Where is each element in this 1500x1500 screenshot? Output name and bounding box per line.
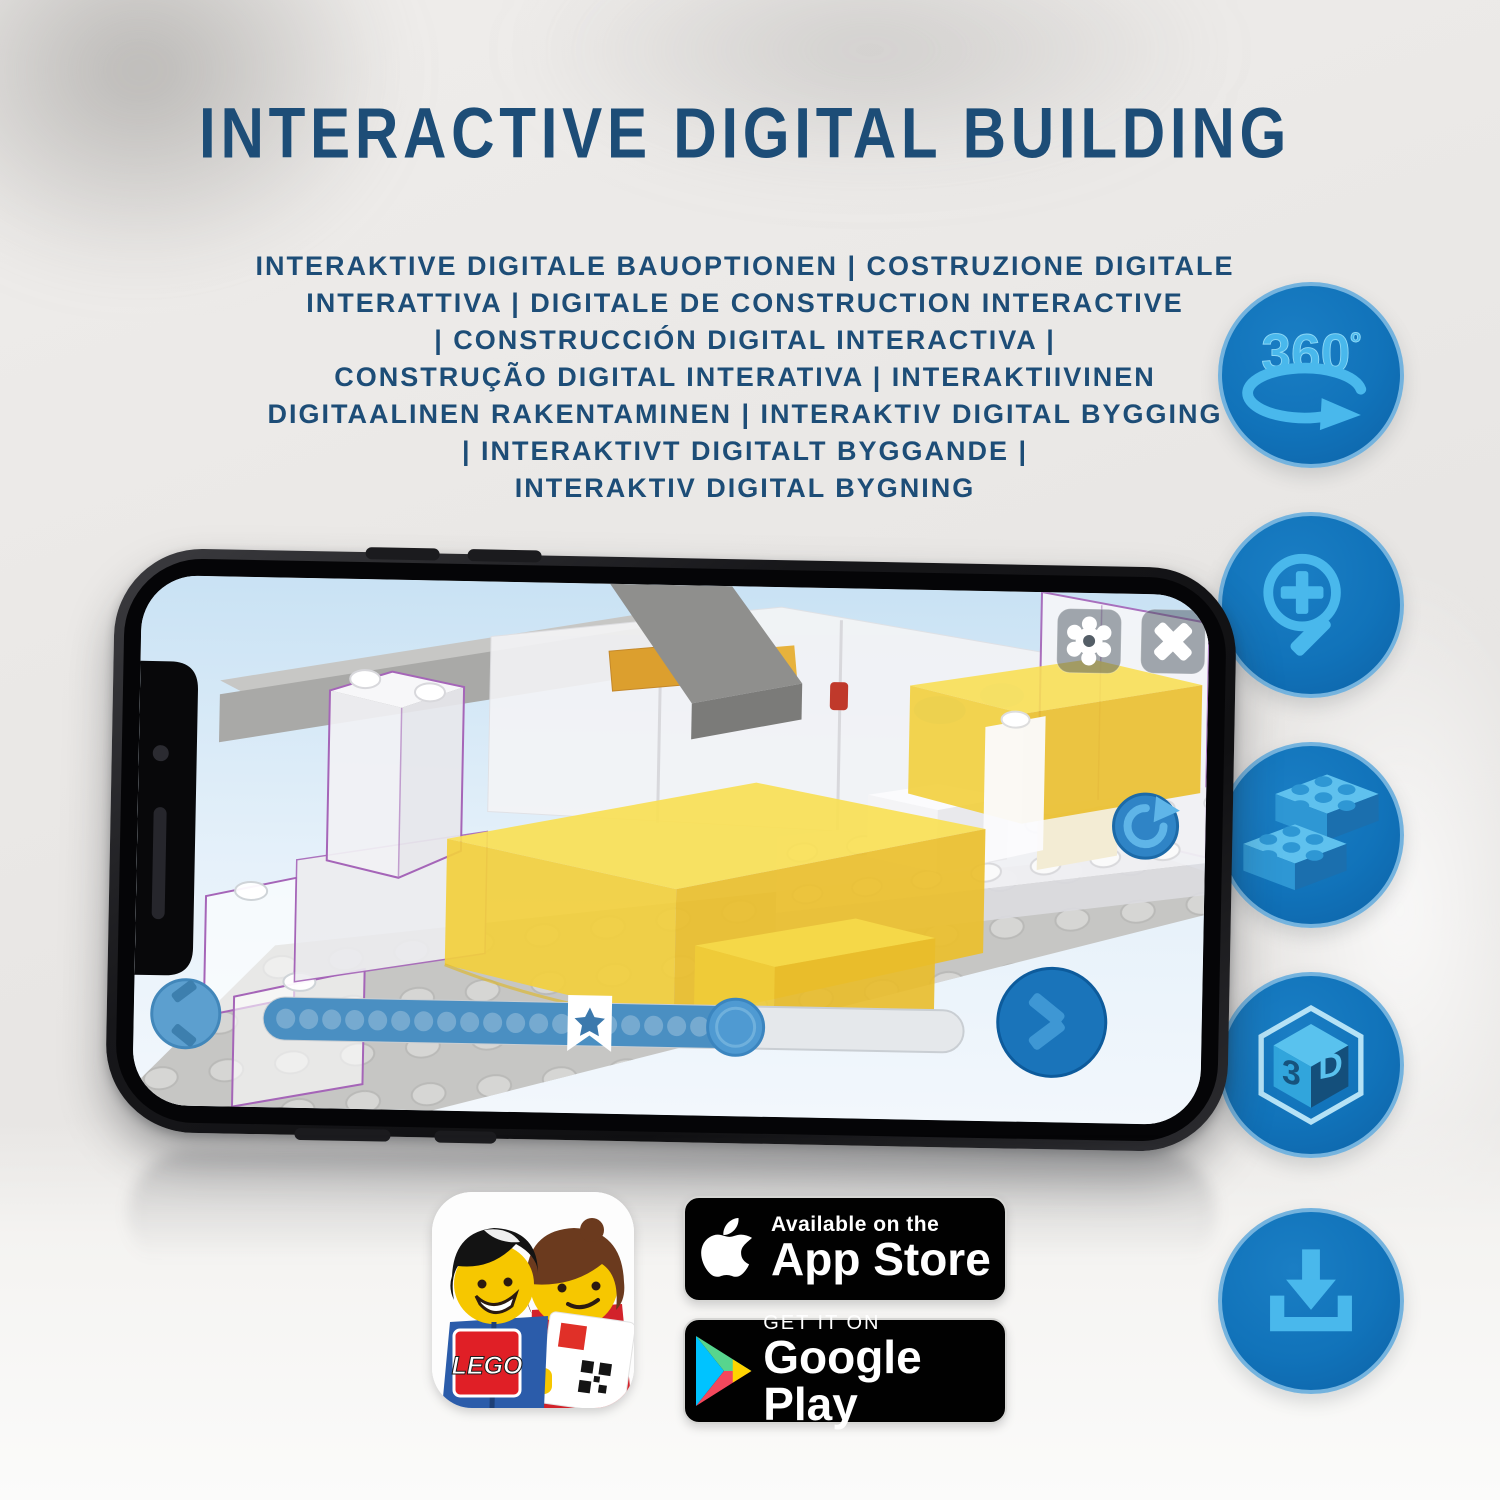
badge-bottom-text: App Store bbox=[771, 1236, 991, 1284]
phone-notch bbox=[135, 661, 199, 976]
subtitle-line: INTERAKTIVE DIGITALE BAUOPTIONEN | COSTR… bbox=[85, 248, 1405, 285]
poster: INTERACTIVE DIGITAL BUILDING INTERAKTIVE… bbox=[0, 0, 1500, 1500]
badge-bottom-text: Google Play bbox=[763, 1334, 1005, 1430]
white-brick bbox=[983, 715, 1046, 864]
volume-button bbox=[468, 549, 542, 562]
speaker-slit bbox=[152, 807, 167, 919]
google-play-badge[interactable]: GET IT ON Google Play bbox=[683, 1318, 1007, 1424]
feature-360-rotation: 360º bbox=[1218, 282, 1404, 468]
settings-button[interactable] bbox=[1056, 608, 1121, 673]
progress-slider-knob[interactable] bbox=[707, 999, 764, 1056]
app-screen bbox=[132, 575, 1210, 1125]
lego-builder-scene bbox=[132, 575, 1210, 1125]
apple-logo-icon bbox=[685, 1217, 771, 1281]
phone-reflection bbox=[128, 1150, 1216, 1280]
feature-zoom bbox=[1218, 512, 1404, 698]
3d-cube-icon: 3 D bbox=[1222, 976, 1400, 1154]
lego-app-artwork: LEGO bbox=[432, 1192, 634, 1408]
page-title: INTERACTIVE DIGITAL BUILDING bbox=[120, 92, 1370, 175]
minifig-detail bbox=[830, 682, 849, 710]
svg-text:D: D bbox=[1318, 1045, 1342, 1088]
subtitle-line: | CONSTRUCCIÓN DIGITAL INTERACTIVA | bbox=[85, 322, 1405, 359]
lego-app-icon[interactable]: LEGO bbox=[432, 1192, 634, 1408]
feature-download bbox=[1218, 1208, 1404, 1394]
subtitle-line: CONSTRUÇÃO DIGITAL INTERATIVA | INTERAKT… bbox=[85, 359, 1405, 396]
subtitle-line: INTERAKTIV DIGITAL BYGNING bbox=[85, 470, 1405, 507]
subtitle-line: | INTERAKTIVT DIGITALT BYGGANDE | bbox=[85, 433, 1405, 470]
svg-text:LEGO: LEGO bbox=[452, 1352, 523, 1380]
svg-text:3: 3 bbox=[1282, 1052, 1301, 1094]
phone-mockup bbox=[104, 547, 1237, 1152]
google-play-logo-icon bbox=[685, 1336, 763, 1406]
next-step-button[interactable] bbox=[997, 967, 1107, 1077]
feature-3d: 3 D bbox=[1218, 972, 1404, 1158]
feature-brick bbox=[1218, 742, 1404, 928]
multilingual-subtitle: INTERAKTIVE DIGITALE BAUOPTIONEN | COSTR… bbox=[85, 248, 1405, 507]
side-button bbox=[434, 1131, 496, 1144]
lego-brick-icon bbox=[1222, 746, 1400, 924]
close-button[interactable] bbox=[1140, 609, 1205, 674]
volume-button bbox=[366, 547, 440, 560]
subtitle-line: INTERATTIVA | DIGITALE DE CONSTRUCTION I… bbox=[85, 285, 1405, 322]
download-icon bbox=[1222, 1212, 1400, 1390]
360-rotation-icon: 360º bbox=[1222, 286, 1400, 464]
subtitle-line: DIGITAALINEN RAKENTAMINEN | INTERAKTIV D… bbox=[85, 396, 1405, 433]
lego-logo: LEGO bbox=[452, 1330, 523, 1396]
side-button bbox=[294, 1128, 390, 1142]
zoom-in-icon bbox=[1222, 516, 1400, 694]
app-store-badge[interactable]: Available on the App Store bbox=[683, 1196, 1007, 1302]
previous-step-button[interactable] bbox=[151, 978, 220, 1048]
